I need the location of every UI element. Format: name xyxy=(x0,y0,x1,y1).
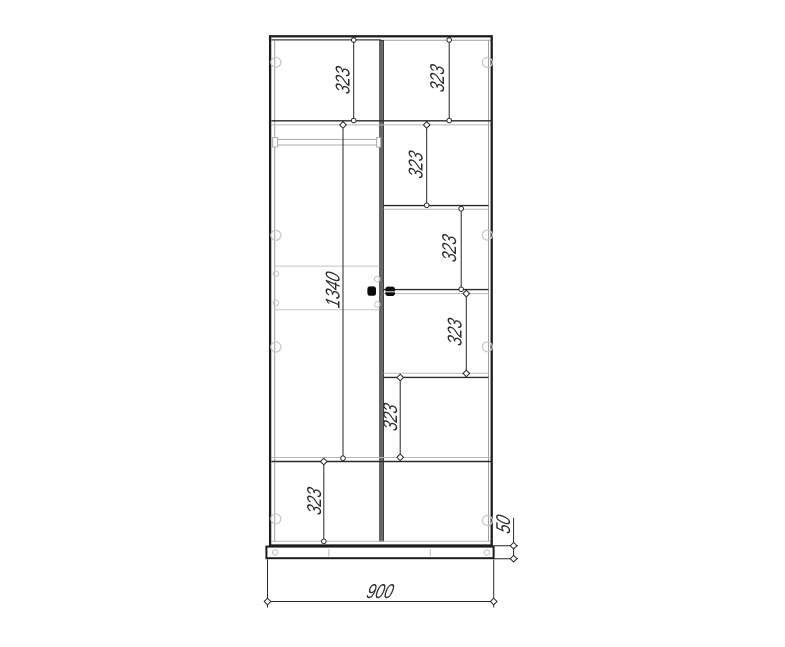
svg-text:1340: 1340 xyxy=(321,268,344,310)
